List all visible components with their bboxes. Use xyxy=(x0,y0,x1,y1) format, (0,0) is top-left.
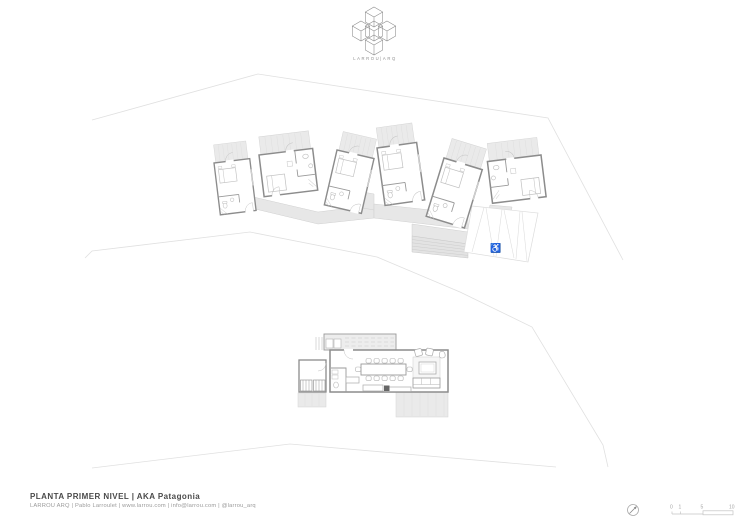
armchair xyxy=(425,348,433,356)
cabin-6 xyxy=(485,137,546,204)
armchair xyxy=(414,348,422,356)
wood-stove xyxy=(384,386,390,392)
sheet-credits: LARROU ARQ | Pablo Larroulet | www.larro… xyxy=(30,502,256,511)
sheet-title: PLANTA PRIMER NIVEL | AKA Patagonia xyxy=(30,492,265,502)
scale-label-10: 10 xyxy=(729,505,735,511)
lodge-deck-right xyxy=(396,392,448,417)
logo-wordmark: LARROU|ARQ xyxy=(353,56,397,61)
scale-label-5: 5 xyxy=(701,505,704,511)
cabin-4 xyxy=(374,123,425,207)
cabin-2 xyxy=(257,131,318,198)
north-arrow-icon xyxy=(628,505,639,516)
parking-area: ♿ xyxy=(464,206,538,262)
main-lodge xyxy=(298,334,448,417)
side-chair xyxy=(439,351,445,358)
site-plan-drawing: ♿ xyxy=(0,0,750,530)
scale-bar: 0 1 5 10 xyxy=(670,505,735,515)
logo-cubes-icon xyxy=(352,7,395,55)
lodge-deck-left xyxy=(298,393,326,407)
accessible-parking-icon: ♿ xyxy=(490,242,501,253)
entry-steps xyxy=(316,337,322,350)
logo: LARROU|ARQ xyxy=(352,7,397,61)
scale-label-0: 0 xyxy=(670,505,673,511)
bunk-room xyxy=(299,360,326,392)
cabin-1 xyxy=(212,141,256,216)
scale-label-1: 1 xyxy=(679,505,682,511)
site-boundary-lines xyxy=(85,74,623,468)
title-block: PLANTA PRIMER NIVEL | AKA Patagonia LARR… xyxy=(30,492,265,511)
kitchen-strip xyxy=(324,334,396,350)
drawing-sheet: ♿ xyxy=(0,0,750,530)
coffee-table xyxy=(419,362,436,374)
sofa xyxy=(413,378,440,388)
kitchen-island xyxy=(346,377,359,383)
